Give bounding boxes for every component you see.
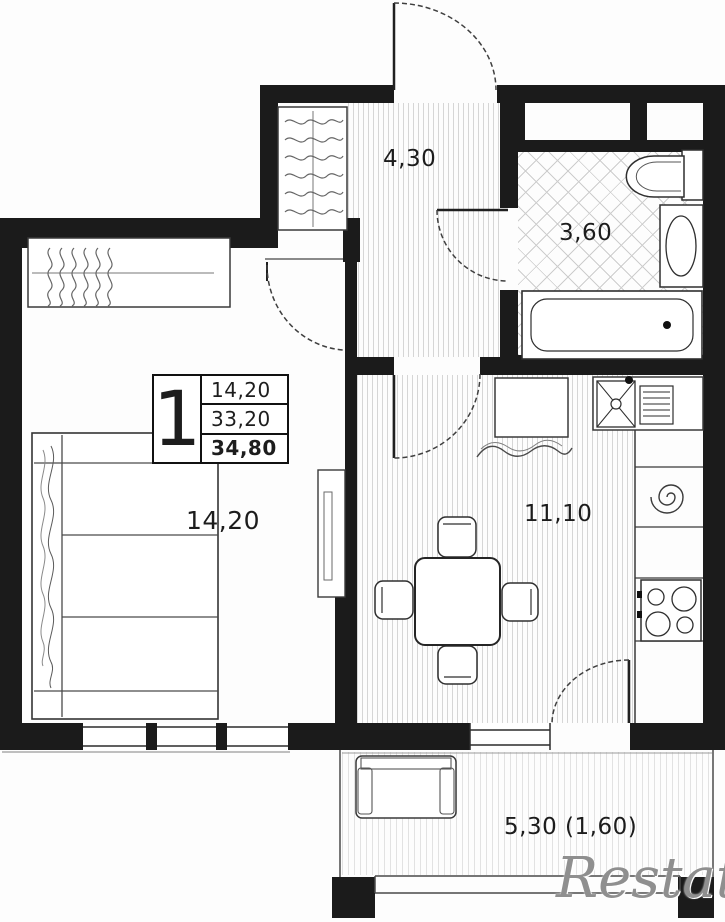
spiral-symbol <box>651 485 683 513</box>
entrance-door <box>394 3 496 90</box>
balcony-door <box>552 660 629 724</box>
kitchen-sink <box>593 376 703 430</box>
dining-set <box>375 517 538 684</box>
kitchen-counter-unit <box>495 378 568 437</box>
bathroom-door <box>437 210 508 281</box>
sofa <box>32 433 218 719</box>
chair <box>438 646 477 684</box>
stove <box>637 580 701 641</box>
bathtub <box>522 291 702 359</box>
chair <box>502 583 538 621</box>
bathroom-fixtures <box>522 150 703 359</box>
unit-info-box: 1 14,20 33,20 34,80 <box>152 374 289 464</box>
hallway-area-label: 4,30 <box>383 146 436 172</box>
plan-geometry <box>0 0 725 922</box>
bathroom-sink <box>660 205 703 287</box>
dining-table <box>415 558 500 645</box>
rooms-count: 1 <box>154 376 202 462</box>
toilet <box>626 150 703 200</box>
area-value: 33,20 <box>202 403 287 432</box>
total-area-value: 34,80 <box>202 433 287 462</box>
living-room-door <box>265 259 343 350</box>
kitchen-area-label: 11,10 <box>524 501 592 527</box>
chair <box>375 581 413 619</box>
living-area-value: 14,20 <box>202 376 287 403</box>
watermark: Restate <box>556 846 725 911</box>
balcony-area-label: 5,30 (1,60) <box>504 814 637 840</box>
bathroom-area-label: 3,60 <box>559 220 612 246</box>
living-room-area-label: 14,20 <box>186 506 260 535</box>
chair <box>438 517 476 557</box>
kitchen-counter-column <box>635 430 703 723</box>
kitchen-window <box>470 723 550 750</box>
radiator-squiggle <box>477 440 572 457</box>
kitchen-door <box>394 374 480 458</box>
living-room-cabinet <box>318 470 345 597</box>
floor-plan: 4,30 3,60 14,20 11,10 5,30 (1,60) 1 14,2… <box>0 0 725 922</box>
balcony-bench <box>356 756 456 818</box>
living-room-wardrobe <box>28 238 230 307</box>
unit-areas: 14,20 33,20 34,80 <box>202 376 287 462</box>
hallway-wardrobe <box>278 107 347 230</box>
kitchen-fixtures <box>477 376 703 723</box>
